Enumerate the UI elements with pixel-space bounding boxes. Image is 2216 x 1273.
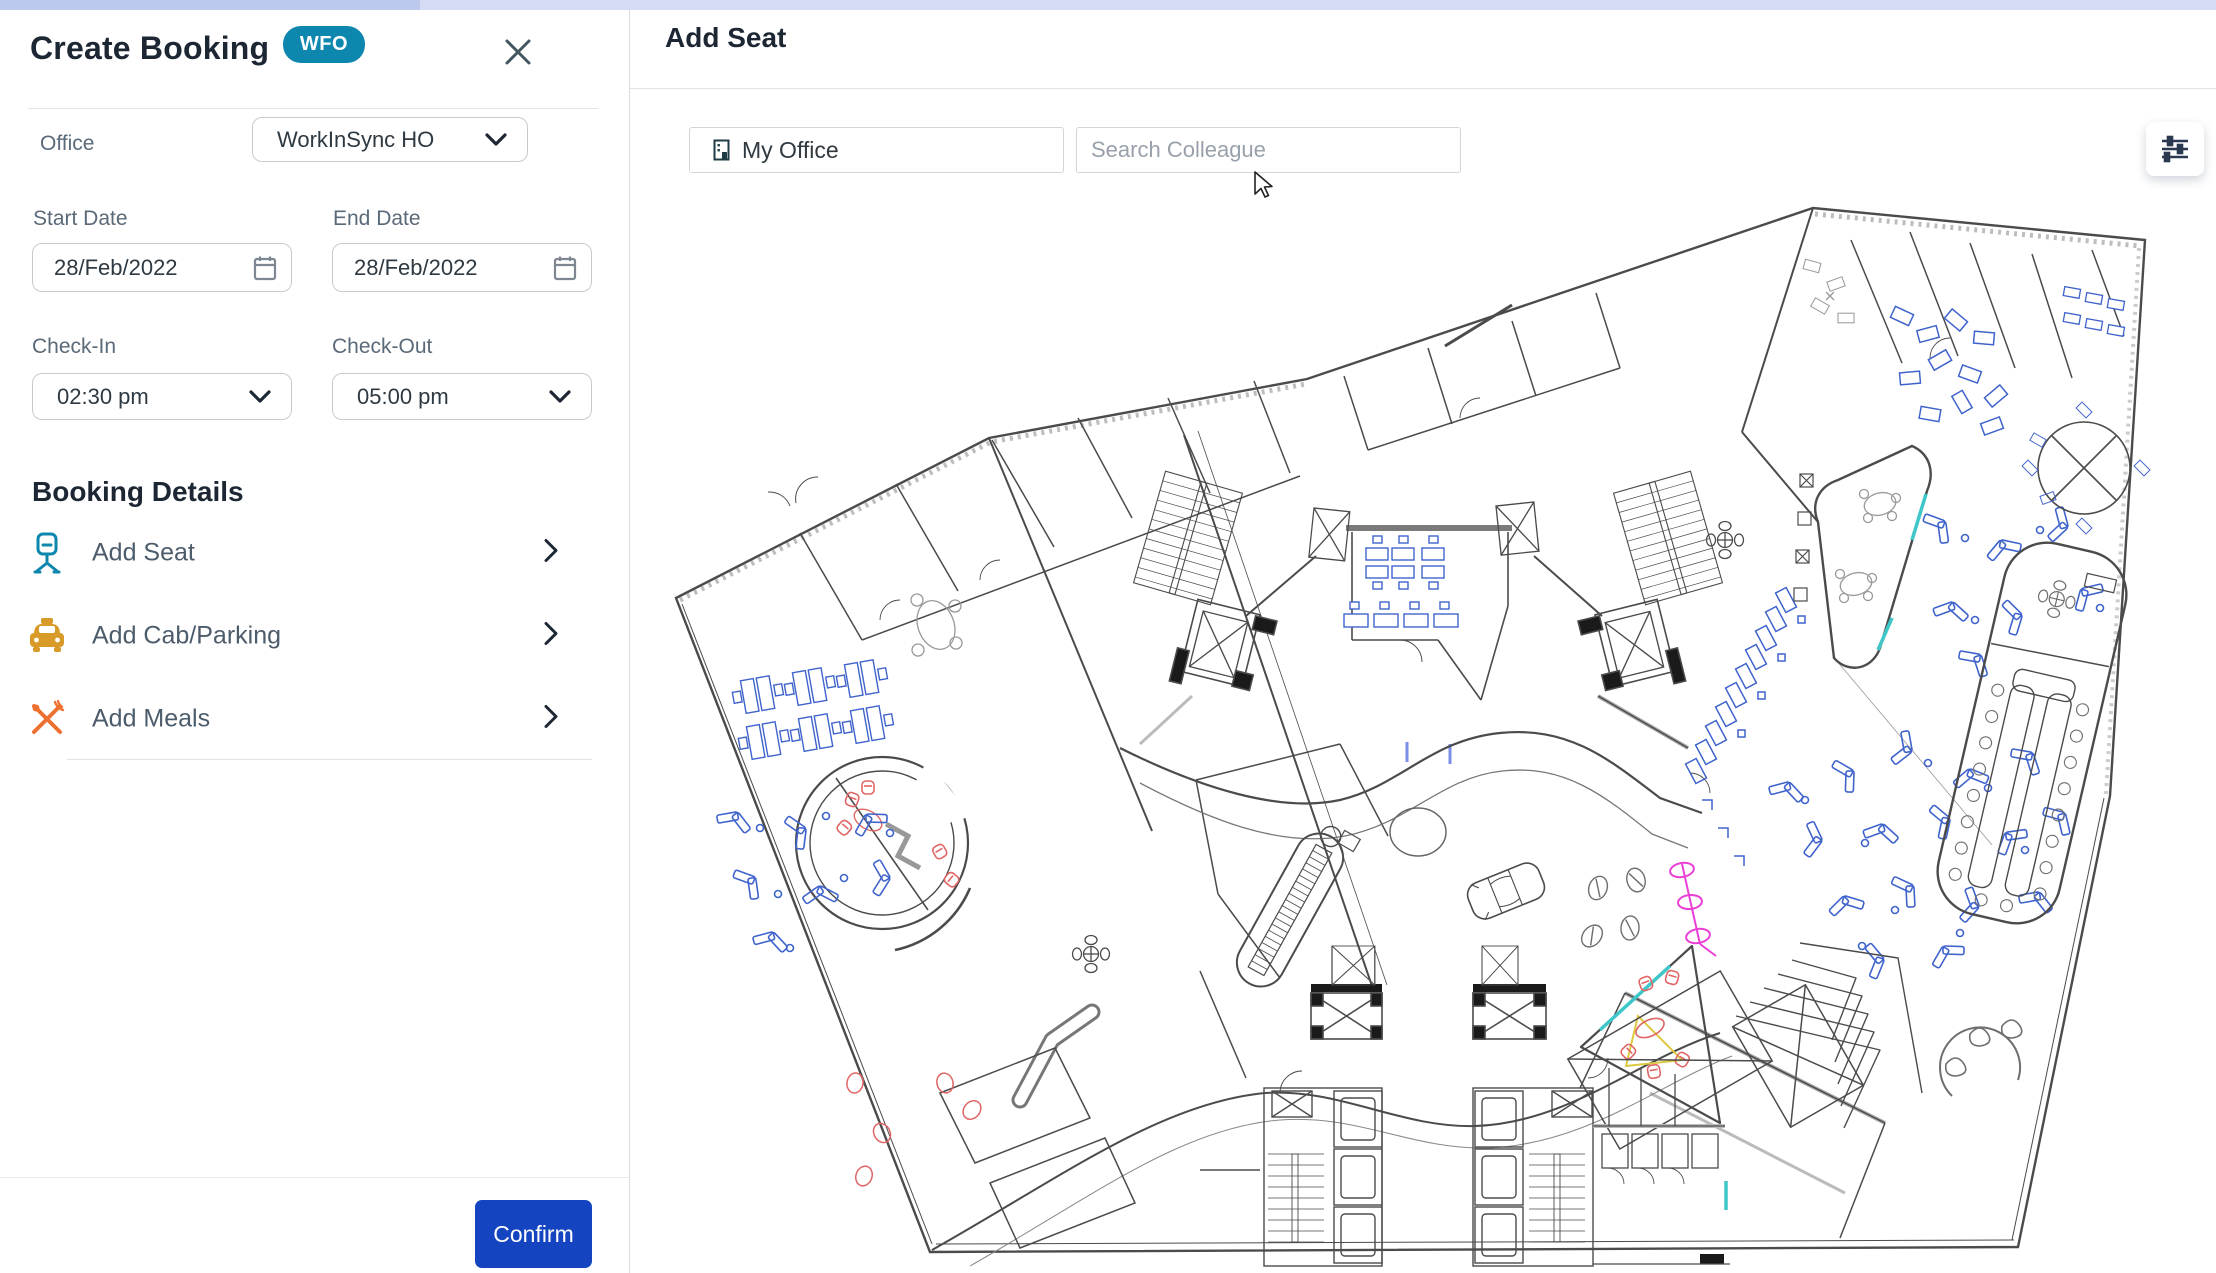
end-date-value: 28/Feb/2022 xyxy=(354,255,478,281)
check-in-label: Check-In xyxy=(32,335,116,359)
end-date-input[interactable]: 28/Feb/2022 xyxy=(332,243,592,292)
my-office-label: My Office xyxy=(742,137,839,164)
search-colleague-input[interactable] xyxy=(1076,127,1461,173)
confirm-button[interactable]: Confirm xyxy=(475,1200,592,1268)
central-core xyxy=(1246,502,1602,764)
my-office-button[interactable]: My Office xyxy=(689,127,1064,173)
check-in-select[interactable]: 02:30 pm xyxy=(32,373,292,420)
booking-details-heading: Booking Details xyxy=(32,476,244,508)
chevron-right-icon xyxy=(544,539,558,568)
circular-pod xyxy=(796,757,972,950)
conference-room xyxy=(1929,534,2135,932)
office-building-icon xyxy=(713,139,730,161)
flower-table xyxy=(1707,522,1744,559)
taxi-icon xyxy=(28,614,66,658)
chair-icon xyxy=(28,531,66,575)
chevron-down-icon xyxy=(549,390,571,404)
meeting-room-triangle xyxy=(1794,446,1931,668)
panel-title: Create Booking xyxy=(30,30,269,67)
create-booking-panel: Create Booking WFO Office WorkInSync HO … xyxy=(0,10,630,1273)
footer-divider xyxy=(0,1177,629,1178)
lounge-tables xyxy=(1803,259,1854,323)
calendar-icon xyxy=(253,255,277,281)
floor-plan[interactable] xyxy=(640,188,2152,1273)
close-icon xyxy=(503,37,533,67)
add-cab-parking-row[interactable]: Add Cab/Parking xyxy=(0,608,629,664)
walkway-curves xyxy=(932,732,1732,1266)
boomerang-sofa xyxy=(1020,1012,1092,1100)
desk-cluster[interactable] xyxy=(731,658,896,761)
chevron-right-icon xyxy=(544,705,558,734)
meeting-table xyxy=(911,594,962,656)
building-outline xyxy=(676,208,2145,1252)
staircase xyxy=(1134,471,1723,605)
add-seat-label: Add Seat xyxy=(92,539,195,568)
slanted-rooms xyxy=(1568,971,1864,1149)
start-date-input[interactable]: 28/Feb/2022 xyxy=(32,243,292,292)
end-date-label: End Date xyxy=(333,207,421,231)
add-seat-title: Add Seat xyxy=(665,22,786,54)
add-seat-panel: Add Seat My Office xyxy=(630,10,2216,1273)
chevron-right-icon xyxy=(544,622,558,651)
desk-cluster[interactable] xyxy=(1890,306,2007,435)
flower-table xyxy=(1073,936,1110,973)
meals-icon xyxy=(28,697,66,741)
chevron-down-icon xyxy=(485,133,507,147)
filter-sliders-icon xyxy=(2160,135,2190,163)
header-divider xyxy=(28,108,598,109)
start-date-value: 28/Feb/2022 xyxy=(54,255,178,281)
add-cab-parking-label: Add Cab/Parking xyxy=(92,622,281,651)
office-value: WorkInSync HO xyxy=(277,127,434,153)
curved-sofa xyxy=(1940,1020,2022,1096)
bottom-core-a xyxy=(1264,1088,1382,1266)
start-date-label: Start Date xyxy=(33,207,128,231)
bottom-core-b xyxy=(1473,1088,1593,1266)
add-seat-row[interactable]: Add Seat xyxy=(0,525,629,581)
check-out-select[interactable]: 05:00 pm xyxy=(332,373,592,420)
check-in-value: 02:30 pm xyxy=(57,384,149,410)
wfo-badge: WFO xyxy=(283,26,365,63)
car xyxy=(1464,859,1549,923)
triangle-room xyxy=(1581,946,1720,1123)
desk-cluster[interactable] xyxy=(1918,507,2105,679)
chevron-down-icon xyxy=(249,390,271,404)
desk-cluster[interactable] xyxy=(1769,731,2075,982)
round-pod xyxy=(2022,402,2150,534)
seat-panel-divider xyxy=(630,88,2216,89)
check-out-value: 05:00 pm xyxy=(357,384,449,410)
elevator-shafts xyxy=(1311,946,1546,1039)
add-meals-label: Add Meals xyxy=(92,705,210,734)
office-select[interactable]: WorkInSync HO xyxy=(252,117,528,162)
bean-seats xyxy=(1577,866,1647,951)
filter-button[interactable] xyxy=(2146,122,2204,176)
add-meals-row[interactable]: Add Meals xyxy=(0,691,629,747)
locker-row[interactable] xyxy=(1686,587,1805,866)
elevator-core xyxy=(1169,597,1685,702)
rows-divider xyxy=(67,759,592,760)
browser-top-strip xyxy=(0,0,2216,10)
pink-chairs xyxy=(1669,861,1716,956)
amphitheater-steps xyxy=(1736,943,1922,1128)
app-window: Create Booking WFO Office WorkInSync HO … xyxy=(0,0,2216,1273)
office-label: Office xyxy=(40,132,94,156)
close-button[interactable] xyxy=(498,32,538,72)
check-out-label: Check-Out xyxy=(332,335,432,359)
calendar-icon xyxy=(553,255,577,281)
